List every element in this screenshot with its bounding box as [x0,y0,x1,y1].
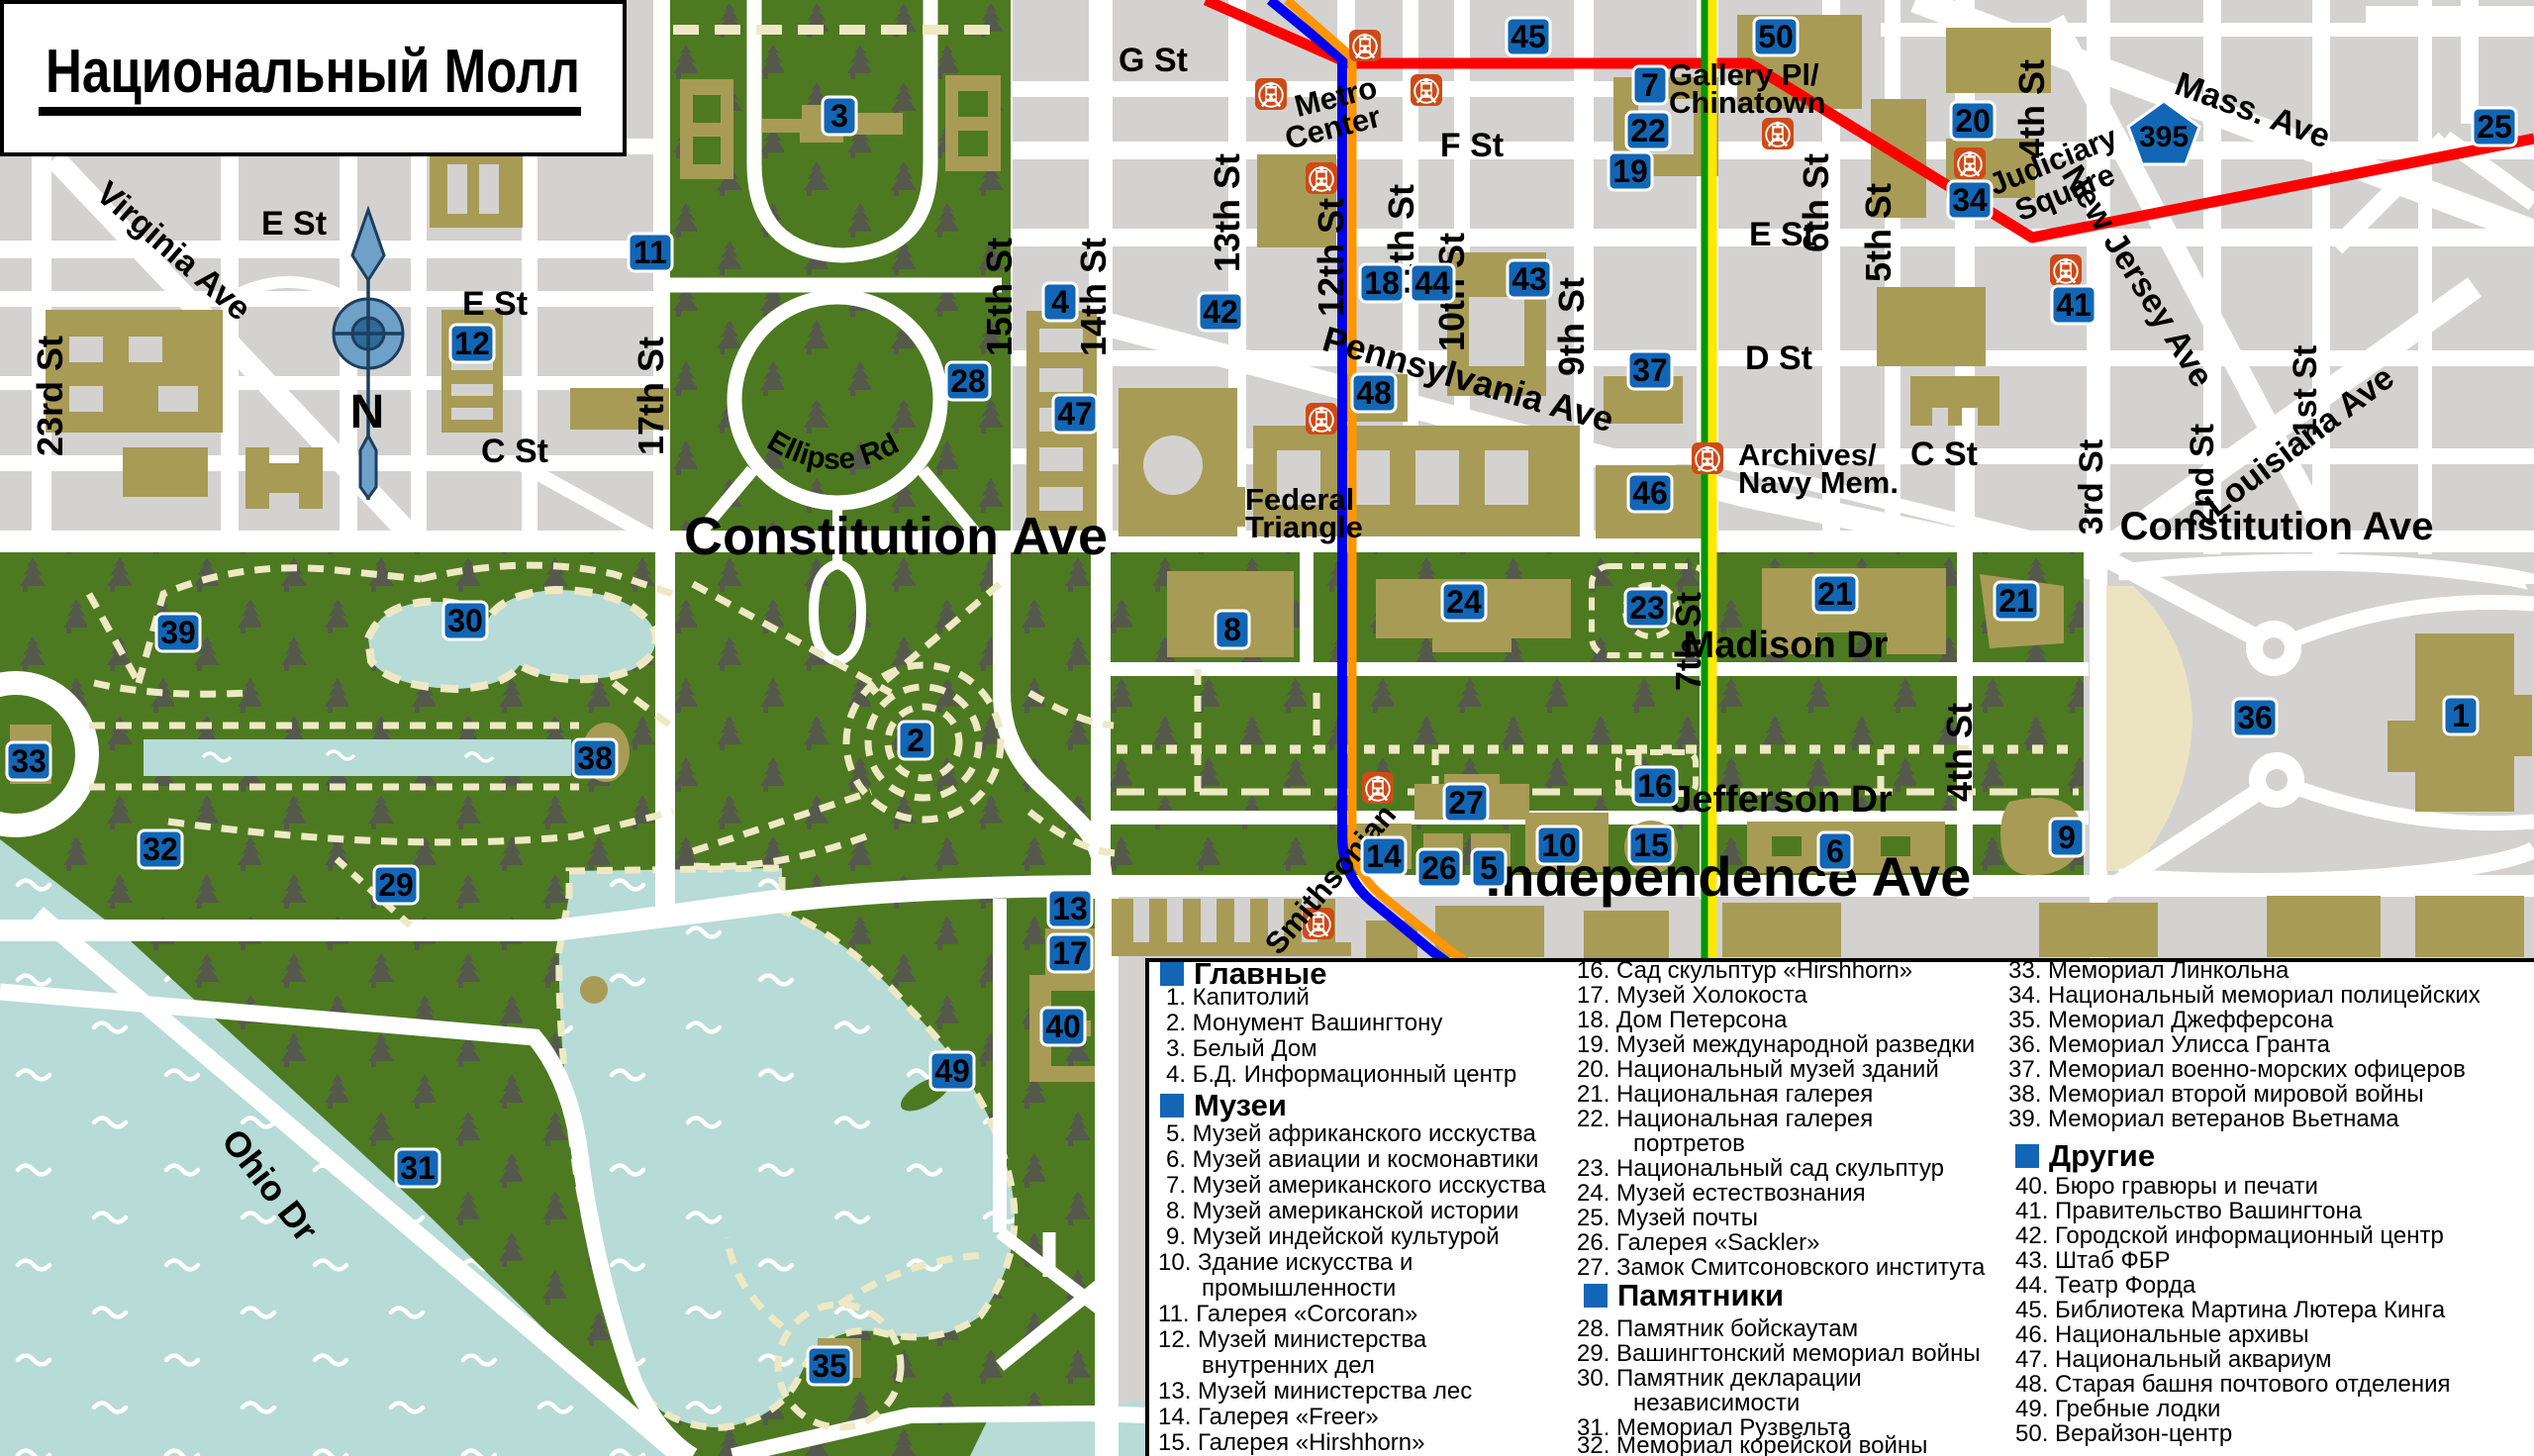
svg-text:5: 5 [1480,850,1498,886]
svg-text:30. Памятник декларации: 30. Памятник декларации [1577,1365,1862,1392]
svg-text:3rd St: 3rd St [2073,439,2110,534]
svg-text:42. Городской информационный ц: 42. Городской информационный центр [2015,1222,2444,1249]
svg-text:13. Музей министерства лес: 13. Музей министерства лес [1158,1378,1472,1405]
svg-text:13th St: 13th St [1207,153,1247,272]
svg-text:16. Сад скульптур «Hirshhorn»: 16. Сад скульптур «Hirshhorn» [1577,957,1912,984]
svg-text:32. Мемориал корейской войны: 32. Мемориал корейской войны [1577,1432,1927,1456]
svg-text:26: 26 [1421,850,1457,886]
svg-text:32: 32 [143,831,178,867]
svg-text:Chinatown: Chinatown [1669,85,1825,120]
svg-text:37: 37 [1632,352,1668,388]
svg-text:35: 35 [812,1348,847,1384]
svg-text:49: 49 [934,1053,970,1089]
svg-text:48: 48 [1356,375,1392,411]
svg-text:Constitution Ave: Constitution Ave [684,507,1108,566]
svg-text:16: 16 [1637,768,1673,804]
svg-text:C St: C St [1910,436,1978,473]
svg-text:18. Дом Петерсона: 18. Дом Петерсона [1577,1007,1788,1033]
svg-text:Памятники: Памятники [1617,1278,1784,1312]
svg-text:47. Национальный аквариум: 47. Национальный аквариум [2015,1346,2332,1373]
svg-text:9: 9 [2058,820,2076,855]
svg-text:25: 25 [2477,109,2512,145]
svg-text:внутренних дел: внутренних дел [1202,1352,1375,1379]
svg-text:27. Замок Смитсоновского инсти: 27. Замок Смитсоновского института [1577,1254,1986,1281]
svg-text:34: 34 [1952,182,1988,218]
svg-text:46: 46 [1632,475,1668,511]
svg-text:Jefferson Dr: Jefferson Dr [1671,779,1893,821]
svg-text:6: 6 [1826,833,1844,869]
svg-text:Национальный Молл: Национальный Молл [46,38,580,106]
svg-text:E St: E St [1749,216,1814,253]
svg-text:промышленности: промышленности [1202,1275,1396,1302]
svg-text:50. Верайзон-центр: 50. Верайзон-центр [2015,1420,2232,1447]
svg-text:2: 2 [907,723,925,758]
svg-text:15: 15 [1633,827,1669,863]
svg-text:17: 17 [1052,935,1088,971]
svg-text:7. Музей американского исскуст: 7. Музей американского исскуства [1166,1172,1546,1199]
svg-text:39. Мемориал ветеранов Вьетнам: 39. Мемориал ветеранов Вьетнама [2008,1106,2399,1132]
svg-text:4th St: 4th St [1939,703,1980,802]
svg-text:6. Музей авиации и космонавтик: 6. Музей авиации и космонавтики [1166,1146,1538,1173]
svg-text:независимости: независимости [1633,1390,1800,1416]
svg-text:44. Театр Форда: 44. Театр Форда [2015,1272,2196,1299]
svg-text:49. Гребные лодки: 49. Гребные лодки [2015,1396,2220,1422]
svg-text:37. Мемориал военно-морских оф: 37. Мемориал военно-морских офицеров [2008,1056,2466,1083]
svg-text:15. Галерея «Hirshhorn»: 15. Галерея «Hirshhorn» [1158,1429,1424,1456]
svg-text:19. Музей международной развед: 19. Музей международной разведки [1577,1031,1975,1058]
svg-text:4. Б.Д. Информационный центр: 4. Б.Д. Информационный центр [1166,1061,1516,1088]
svg-text:13: 13 [1052,891,1088,926]
svg-text:35. Мемориал Джефферсона: 35. Мемориал Джефферсона [2008,1007,2334,1033]
svg-text:42: 42 [1203,294,1238,330]
svg-text:10: 10 [1541,827,1577,863]
svg-text:5th St: 5th St [1858,183,1899,282]
svg-text:50: 50 [1758,19,1794,54]
svg-text:17. Музей Холокоста: 17. Музей Холокоста [1577,982,1807,1009]
svg-text:10. Здание искусства и: 10. Здание искусства и [1158,1249,1413,1276]
svg-text:395: 395 [2139,121,2189,153]
svg-text:33. Мемориал Линкольна: 33. Мемориал Линкольна [2008,957,2290,984]
svg-text:22. Национальная галерея: 22. Национальная галерея [1577,1106,1873,1132]
svg-text:4th St: 4th St [2011,59,2052,158]
svg-text:41: 41 [2056,287,2092,323]
svg-text:44: 44 [1414,265,1450,301]
svg-text:C St: C St [481,433,548,470]
svg-text:1: 1 [2452,698,2470,733]
svg-text:36. Мемориал Улисса Гранта: 36. Мемориал Улисса Гранта [2008,1031,2331,1058]
svg-text:1. Капитолий: 1. Капитолий [1166,984,1310,1011]
svg-text:12th St: 12th St [1311,198,1351,317]
svg-text:38: 38 [577,740,613,776]
svg-text:31: 31 [400,1150,436,1186]
svg-text:46. Национальные архивы: 46. Национальные архивы [2015,1321,2309,1348]
svg-text:33: 33 [11,743,47,779]
svg-text:7: 7 [1641,67,1659,103]
svg-text:24. Музей естествознания: 24. Музей естествознания [1577,1180,1866,1207]
svg-text:18: 18 [1364,265,1400,301]
svg-text:28: 28 [950,363,986,399]
svg-text:41. Правительство Вашингтона: 41. Правительство Вашингтона [2015,1198,2363,1224]
svg-text:2. Монумент Вашингтону: 2. Монумент Вашингтону [1166,1010,1442,1036]
svg-text:19: 19 [1612,153,1648,189]
svg-text:30: 30 [447,603,483,638]
svg-text:47: 47 [1057,396,1093,432]
svg-text:портретов: портретов [1633,1130,1745,1157]
svg-text:3. Белый Дом: 3. Белый Дом [1166,1035,1317,1062]
svg-text:Другие: Другие [2049,1138,2155,1173]
svg-text:14th St: 14th St [1073,238,1114,356]
svg-text:11. Галерея «Corcoran»: 11. Галерея «Corcoran» [1158,1301,1417,1327]
svg-text:E St: E St [462,285,528,323]
svg-text:9th St: 9th St [1551,277,1592,376]
svg-text:15th St: 15th St [979,238,1020,356]
svg-text:11: 11 [633,235,667,270]
svg-text:22: 22 [1630,113,1666,148]
svg-text:14. Галерея «Freer»: 14. Галерея «Freer» [1158,1404,1379,1430]
svg-text:23. Национальный сад скульптур: 23. Национальный сад скульптур [1577,1155,1944,1182]
svg-text:40: 40 [1045,1009,1081,1044]
svg-text:5. Музей африканского исскуств: 5. Музей африканского исскуства [1166,1120,1536,1147]
svg-text:29: 29 [378,867,414,903]
svg-text:G St: G St [1119,42,1188,79]
svg-text:3: 3 [830,98,848,134]
svg-text:12. Музей министерства: 12. Музей министерства [1158,1326,1427,1353]
svg-text:14: 14 [1366,838,1402,874]
svg-text:43. Штаб ФБР: 43. Штаб ФБР [2015,1247,2171,1274]
svg-text:Музеи: Музеи [1194,1088,1287,1122]
svg-text:28. Памятник бойскаутам: 28. Памятник бойскаутам [1577,1315,1858,1342]
svg-text:Madison Dr: Madison Dr [1684,625,1889,666]
svg-text:E St: E St [261,205,327,243]
svg-text:8: 8 [1223,612,1241,647]
svg-text:20: 20 [1955,103,1991,139]
svg-text:27: 27 [1448,785,1484,821]
svg-text:24: 24 [1446,584,1482,620]
svg-text:21. Национальная галерея: 21. Национальная галерея [1577,1081,1873,1108]
svg-text:23: 23 [1629,590,1665,626]
svg-text:34. Национальный мемориал поли: 34. Национальный мемориал полицейских [2008,982,2481,1009]
svg-text:43: 43 [1511,261,1547,297]
svg-text:39: 39 [160,615,196,650]
svg-text:48. Старая башня почтового отд: 48. Старая башня почтового отделения [2015,1371,2451,1398]
svg-text:45: 45 [1511,19,1546,54]
svg-text:36: 36 [2237,700,2273,735]
svg-text:20. Национальный музей зданий: 20. Национальный музей зданий [1577,1056,1939,1083]
svg-text:Navy Mem.: Navy Mem. [1738,465,1899,500]
svg-text:4: 4 [1051,284,1069,320]
svg-text:40. Бюро гравюры и печати: 40. Бюро гравюры и печати [2015,1173,2318,1200]
svg-text:25. Музей почты: 25. Музей почты [1577,1205,1758,1231]
svg-text:Triangle: Triangle [1245,510,1363,544]
svg-text:F St: F St [1440,127,1504,164]
svg-text:38. Мемориал второй мировой во: 38. Мемориал второй мировой войны [2008,1081,2424,1108]
svg-text:N: N [350,386,385,438]
svg-text:23rd St: 23rd St [30,336,70,456]
svg-text:Constitution Ave: Constitution Ave [2119,505,2433,548]
svg-text:26. Галерея «Sackler»: 26. Галерея «Sackler» [1577,1229,1819,1256]
svg-text:29. Вашингтонский мемориал вой: 29. Вашингтонский мемориал войны [1577,1340,1981,1367]
svg-text:17th St: 17th St [631,337,671,455]
svg-text:21: 21 [1998,583,2034,619]
svg-text:9. Музей индейской культурой: 9. Музей индейской культурой [1166,1223,1500,1250]
svg-text:D St: D St [1745,340,1812,377]
svg-text:21: 21 [1817,576,1853,612]
svg-text:12: 12 [454,326,490,361]
svg-text:8. Музей американской истории: 8. Музей американской истории [1166,1198,1519,1224]
svg-text:45. Библиотека Мартина Лютера: 45. Библиотека Мартина Лютера Кинга [2015,1297,2446,1323]
